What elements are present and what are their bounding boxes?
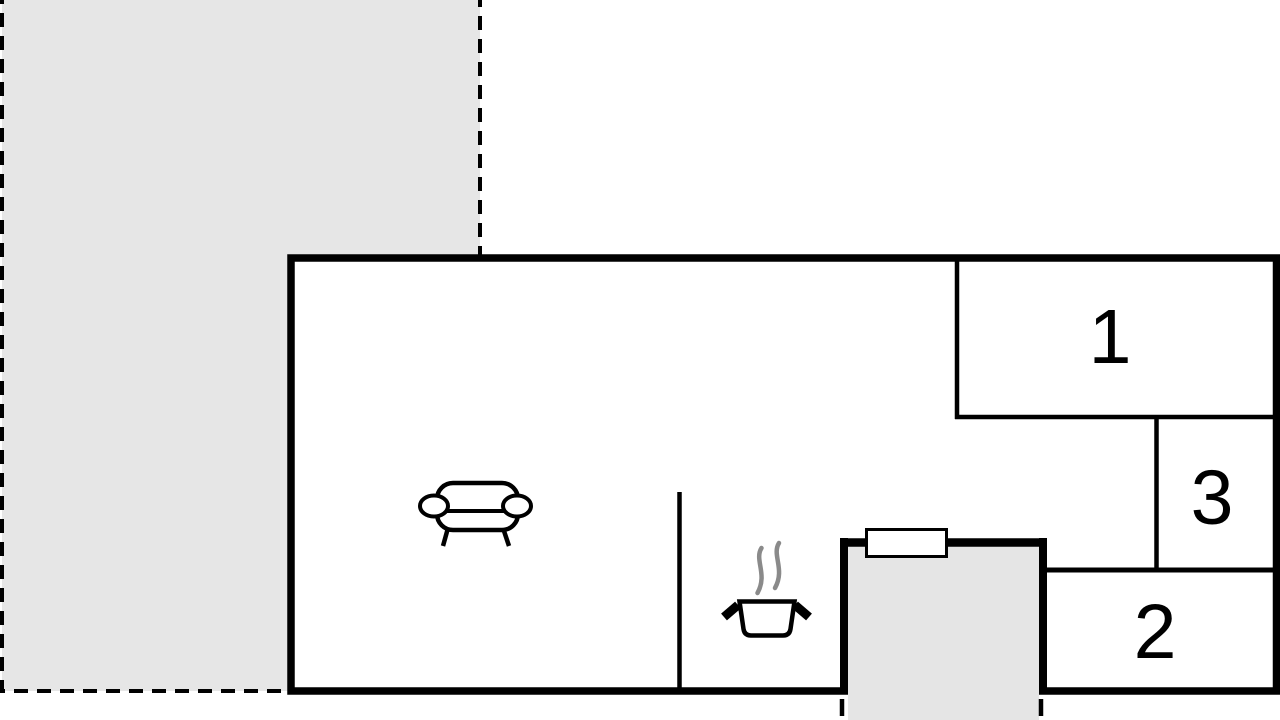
sofa-left-armrest xyxy=(420,496,448,517)
room-2-label: 2 xyxy=(1134,589,1177,675)
pot-body xyxy=(740,602,795,636)
sofa-right-armrest xyxy=(503,496,531,517)
entrance-porch-area xyxy=(848,546,1039,720)
window-icon xyxy=(867,530,947,557)
room-3-label: 3 xyxy=(1191,455,1234,541)
floor-plan: 1 3 2 xyxy=(0,0,1280,720)
floor-plan-canvas: 1 3 2 xyxy=(0,0,1280,720)
room-1-label: 1 xyxy=(1089,294,1132,380)
